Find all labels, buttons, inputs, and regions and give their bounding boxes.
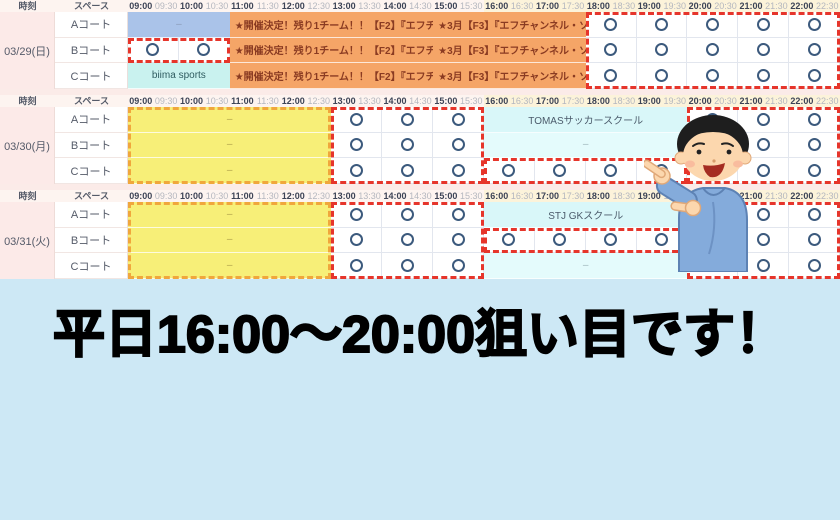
court-label: Cコート bbox=[55, 253, 128, 279]
court-label: Bコート bbox=[55, 38, 128, 64]
time-label-10:30: 10:30 bbox=[204, 190, 229, 202]
available-slot[interactable] bbox=[586, 158, 637, 184]
available-circle-icon bbox=[350, 164, 363, 177]
time-label-13:30: 13:30 bbox=[357, 190, 382, 202]
available-slot[interactable] bbox=[535, 228, 586, 254]
available-circle-icon bbox=[604, 69, 617, 82]
available-circle-icon bbox=[706, 69, 719, 82]
available-slot[interactable] bbox=[382, 253, 433, 279]
available-slot[interactable] bbox=[433, 202, 484, 228]
time-label-09:00: 09:00 bbox=[128, 0, 153, 12]
available-slot[interactable] bbox=[738, 38, 789, 64]
available-circle-icon bbox=[757, 43, 770, 56]
available-circle-icon bbox=[350, 233, 363, 246]
time-label-11:00: 11:00 bbox=[230, 0, 255, 12]
available-slot[interactable] bbox=[433, 133, 484, 159]
available-slot[interactable] bbox=[586, 63, 637, 89]
available-slot[interactable] bbox=[382, 107, 433, 133]
orange-booking-block: ★開催決定！残り1チーム！！【F2】『エフチャ… bbox=[230, 12, 433, 38]
available-circle-icon bbox=[808, 138, 821, 151]
available-circle-icon bbox=[452, 164, 465, 177]
available-circle-icon bbox=[604, 18, 617, 31]
available-circle-icon bbox=[502, 233, 515, 246]
available-slot[interactable] bbox=[738, 63, 789, 89]
available-circle-icon bbox=[808, 259, 821, 272]
space-column-header: スペース bbox=[55, 190, 128, 202]
available-slot[interactable] bbox=[484, 158, 535, 184]
available-circle-icon bbox=[401, 233, 414, 246]
available-slot[interactable] bbox=[586, 228, 637, 254]
time-label-13:30: 13:30 bbox=[357, 95, 382, 107]
available-slot[interactable] bbox=[331, 202, 382, 228]
available-slot[interactable] bbox=[586, 38, 637, 64]
time-label-17:00: 17:00 bbox=[535, 95, 560, 107]
court-label: Aコート bbox=[55, 12, 128, 38]
available-slot[interactable] bbox=[789, 158, 840, 184]
available-slot[interactable] bbox=[382, 228, 433, 254]
time-label-11:00: 11:00 bbox=[230, 95, 255, 107]
space-column-header: スペース bbox=[55, 95, 128, 107]
time-label-12:30: 12:30 bbox=[306, 0, 331, 12]
available-slot[interactable] bbox=[179, 38, 230, 64]
available-slot[interactable] bbox=[687, 12, 738, 38]
time-label-19:30: 19:30 bbox=[662, 0, 687, 12]
available-circle-icon bbox=[452, 138, 465, 151]
available-slot[interactable] bbox=[789, 107, 840, 133]
available-circle-icon bbox=[401, 208, 414, 221]
available-circle-icon bbox=[452, 208, 465, 221]
time-label-14:00: 14:00 bbox=[382, 190, 407, 202]
available-slot[interactable] bbox=[331, 228, 382, 254]
time-label-16:30: 16:30 bbox=[509, 190, 534, 202]
time-label-17:30: 17:30 bbox=[560, 0, 585, 12]
time-label-13:00: 13:00 bbox=[331, 0, 356, 12]
time-label-18:30: 18:30 bbox=[611, 190, 636, 202]
time-label-09:30: 09:30 bbox=[153, 190, 178, 202]
available-circle-icon bbox=[401, 113, 414, 126]
available-slot[interactable] bbox=[433, 158, 484, 184]
available-slot[interactable] bbox=[789, 253, 840, 279]
time-label-10:00: 10:00 bbox=[179, 95, 204, 107]
available-slot[interactable] bbox=[586, 12, 637, 38]
time-label-15:30: 15:30 bbox=[459, 190, 484, 202]
time-label-13:00: 13:00 bbox=[331, 190, 356, 202]
available-circle-icon bbox=[808, 113, 821, 126]
time-label-09:30: 09:30 bbox=[153, 95, 178, 107]
available-slot[interactable] bbox=[637, 63, 688, 89]
time-label-17:00: 17:00 bbox=[535, 0, 560, 12]
available-circle-icon bbox=[808, 18, 821, 31]
available-slot[interactable] bbox=[637, 38, 688, 64]
orange-booking-block: ★3月【F3】『エフチャンネル・ソ… bbox=[433, 63, 586, 89]
available-slot[interactable] bbox=[789, 202, 840, 228]
time-label-20:00: 20:00 bbox=[687, 0, 712, 12]
time-label-14:00: 14:00 bbox=[382, 95, 407, 107]
time-label-12:00: 12:00 bbox=[281, 190, 306, 202]
available-circle-icon bbox=[655, 69, 668, 82]
available-slot[interactable] bbox=[433, 253, 484, 279]
time-label-12:00: 12:00 bbox=[281, 95, 306, 107]
available-slot[interactable] bbox=[331, 158, 382, 184]
time-label-11:30: 11:30 bbox=[255, 95, 280, 107]
date-cell: 03/31(火) bbox=[0, 202, 55, 279]
time-label-15:30: 15:30 bbox=[459, 0, 484, 12]
time-label-11:00: 11:00 bbox=[230, 190, 255, 202]
time-label-12:30: 12:30 bbox=[306, 190, 331, 202]
available-slot[interactable] bbox=[331, 253, 382, 279]
available-slot[interactable] bbox=[738, 12, 789, 38]
available-circle-icon bbox=[452, 113, 465, 126]
time-label-14:30: 14:30 bbox=[408, 190, 433, 202]
available-circle-icon bbox=[808, 233, 821, 246]
court-label: Cコート bbox=[55, 63, 128, 89]
time-label-12:00: 12:00 bbox=[281, 0, 306, 12]
time-column-header: 時刻 bbox=[0, 0, 55, 12]
time-label-14:30: 14:30 bbox=[408, 0, 433, 12]
time-label-13:30: 13:30 bbox=[357, 0, 382, 12]
available-circle-icon bbox=[706, 43, 719, 56]
available-slot[interactable] bbox=[331, 133, 382, 159]
court-label: Bコート bbox=[55, 228, 128, 254]
available-circle-icon bbox=[452, 233, 465, 246]
time-label-16:30: 16:30 bbox=[509, 95, 534, 107]
yellow-booking-block: – bbox=[128, 228, 331, 254]
time-label-17:30: 17:30 bbox=[560, 190, 585, 202]
time-label-15:00: 15:00 bbox=[433, 95, 458, 107]
time-label-16:00: 16:00 bbox=[484, 0, 509, 12]
time-label-21:00: 21:00 bbox=[738, 0, 763, 12]
time-label-18:00: 18:00 bbox=[586, 190, 611, 202]
available-circle-icon bbox=[604, 43, 617, 56]
time-label-09:00: 09:00 bbox=[128, 95, 153, 107]
time-label-12:30: 12:30 bbox=[306, 95, 331, 107]
time-label-14:30: 14:30 bbox=[408, 95, 433, 107]
schedule-section-0: 時刻スペース09:0009:3010:0010:3011:0011:3012:0… bbox=[0, 0, 840, 89]
time-label-22:30: 22:30 bbox=[815, 0, 840, 12]
available-slot[interactable] bbox=[128, 38, 179, 64]
blue-booking-block: – bbox=[128, 12, 230, 38]
orange-booking-block: ★3月【F3】『エフチャンネル・ソ… bbox=[433, 12, 586, 38]
available-slot[interactable] bbox=[789, 12, 840, 38]
available-circle-icon bbox=[452, 259, 465, 272]
orange-booking-block: ★3月【F3】『エフチャンネル・ソ… bbox=[433, 38, 586, 64]
available-circle-icon bbox=[808, 43, 821, 56]
court-label: Aコート bbox=[55, 202, 128, 228]
time-label-17:30: 17:30 bbox=[560, 95, 585, 107]
time-label-10:30: 10:30 bbox=[204, 0, 229, 12]
time-label-17:00: 17:00 bbox=[535, 190, 560, 202]
available-circle-icon bbox=[553, 164, 566, 177]
time-label-19:00: 19:00 bbox=[637, 0, 662, 12]
space-column-header: スペース bbox=[55, 0, 128, 12]
yellow-booking-block: – bbox=[128, 202, 331, 228]
time-label-18:30: 18:30 bbox=[611, 0, 636, 12]
available-slot[interactable] bbox=[433, 107, 484, 133]
available-circle-icon bbox=[808, 69, 821, 82]
orange-booking-block: ★開催決定！残り1チーム！！【F2】『エフチャ… bbox=[230, 38, 433, 64]
available-slot[interactable] bbox=[484, 228, 535, 254]
available-slot[interactable] bbox=[535, 158, 586, 184]
time-label-10:00: 10:00 bbox=[179, 190, 204, 202]
time-label-11:30: 11:30 bbox=[255, 190, 280, 202]
available-slot[interactable] bbox=[687, 63, 738, 89]
court-label: Bコート bbox=[55, 133, 128, 159]
court-label: Aコート bbox=[55, 107, 128, 133]
time-label-22:00: 22:00 bbox=[789, 95, 814, 107]
available-circle-icon bbox=[655, 43, 668, 56]
available-circle-icon bbox=[553, 233, 566, 246]
time-label-22:00: 22:00 bbox=[789, 0, 814, 12]
available-circle-icon bbox=[706, 18, 719, 31]
available-slot[interactable] bbox=[331, 107, 382, 133]
time-label-22:00: 22:00 bbox=[789, 190, 814, 202]
available-circle-icon bbox=[146, 43, 159, 56]
time-label-15:30: 15:30 bbox=[459, 95, 484, 107]
available-circle-icon bbox=[757, 18, 770, 31]
time-label-15:00: 15:00 bbox=[433, 0, 458, 12]
available-slot[interactable] bbox=[382, 202, 433, 228]
available-circle-icon bbox=[502, 164, 515, 177]
available-circle-icon bbox=[604, 164, 617, 177]
available-circle-icon bbox=[655, 18, 668, 31]
yellow-booking-block: – bbox=[128, 253, 331, 279]
time-label-18:00: 18:00 bbox=[586, 95, 611, 107]
aqua-booking-block: biima sports bbox=[128, 63, 230, 89]
time-column-header: 時刻 bbox=[0, 95, 55, 107]
available-circle-icon bbox=[808, 164, 821, 177]
available-circle-icon bbox=[604, 233, 617, 246]
available-circle-icon bbox=[401, 259, 414, 272]
orange-booking-block: ★開催決定！残り1チーム！！【F2】『エフチャ… bbox=[230, 63, 433, 89]
time-label-16:00: 16:00 bbox=[484, 190, 509, 202]
available-circle-icon bbox=[350, 113, 363, 126]
promo-banner-text: 平日16:00〜20:00狙い目です！ bbox=[0, 305, 840, 365]
time-label-13:00: 13:00 bbox=[331, 95, 356, 107]
available-circle-icon bbox=[197, 43, 210, 56]
yellow-booking-block: – bbox=[128, 107, 331, 133]
time-label-14:00: 14:00 bbox=[382, 0, 407, 12]
time-label-10:00: 10:00 bbox=[179, 0, 204, 12]
available-slot[interactable] bbox=[637, 12, 688, 38]
court-label: Cコート bbox=[55, 158, 128, 184]
booking-schedule-board: 時刻スペース09:0009:3010:0010:3011:0011:3012:0… bbox=[0, 0, 840, 520]
available-slot[interactable] bbox=[789, 38, 840, 64]
time-label-09:30: 09:30 bbox=[153, 0, 178, 12]
yellow-booking-block: – bbox=[128, 133, 331, 159]
available-slot[interactable] bbox=[687, 38, 738, 64]
time-label-10:30: 10:30 bbox=[204, 95, 229, 107]
available-slot[interactable] bbox=[789, 133, 840, 159]
time-label-18:30: 18:30 bbox=[611, 95, 636, 107]
date-cell: 03/30(月) bbox=[0, 107, 55, 184]
available-slot[interactable] bbox=[789, 63, 840, 89]
time-label-16:00: 16:00 bbox=[484, 95, 509, 107]
available-circle-icon bbox=[808, 208, 821, 221]
time-label-11:30: 11:30 bbox=[255, 0, 280, 12]
yellow-booking-block: – bbox=[128, 158, 331, 184]
time-label-20:30: 20:30 bbox=[713, 0, 738, 12]
available-circle-icon bbox=[350, 259, 363, 272]
time-label-16:30: 16:30 bbox=[509, 0, 534, 12]
time-label-22:30: 22:30 bbox=[815, 95, 840, 107]
available-circle-icon bbox=[401, 138, 414, 151]
available-slot[interactable] bbox=[433, 228, 484, 254]
time-label-18:00: 18:00 bbox=[586, 0, 611, 12]
time-label-09:00: 09:00 bbox=[128, 190, 153, 202]
time-label-22:30: 22:30 bbox=[815, 190, 840, 202]
available-slot[interactable] bbox=[789, 228, 840, 254]
time-label-21:30: 21:30 bbox=[764, 0, 789, 12]
time-label-15:00: 15:00 bbox=[433, 190, 458, 202]
available-slot[interactable] bbox=[382, 133, 433, 159]
date-cell: 03/29(日) bbox=[0, 12, 55, 89]
available-slot[interactable] bbox=[382, 158, 433, 184]
person-illustration bbox=[644, 104, 776, 272]
time-column-header: 時刻 bbox=[0, 190, 55, 202]
available-circle-icon bbox=[350, 208, 363, 221]
available-circle-icon bbox=[401, 164, 414, 177]
available-circle-icon bbox=[350, 138, 363, 151]
promo-banner: 平日16:00〜20:00狙い目です！ bbox=[0, 279, 840, 520]
available-circle-icon bbox=[757, 69, 770, 82]
